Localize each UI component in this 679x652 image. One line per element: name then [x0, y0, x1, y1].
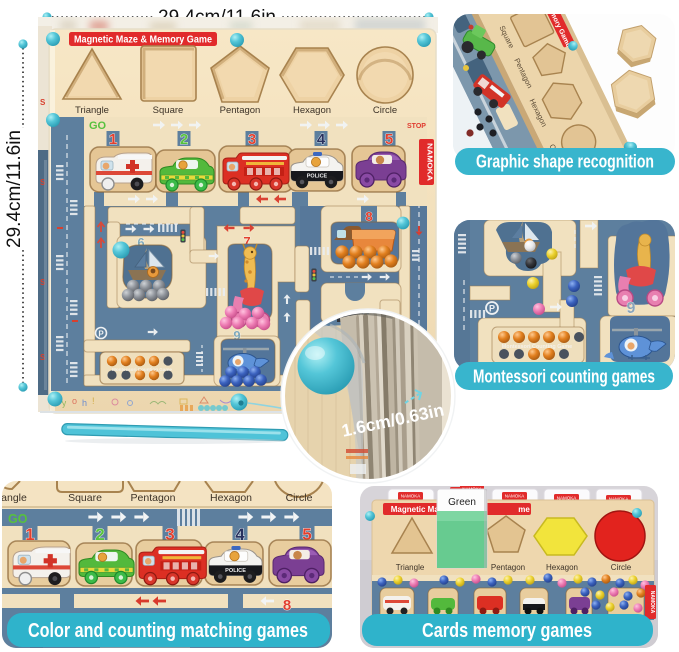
svg-text:NAMOKA: NAMOKA	[426, 143, 435, 182]
svg-text:P: P	[489, 304, 495, 314]
svg-text:GO: GO	[8, 512, 28, 526]
svg-text:Triangle: Triangle	[75, 105, 109, 116]
svg-text:2: 2	[180, 131, 188, 148]
svg-text:o: o	[72, 396, 77, 406]
svg-text:Montessori Counting Game: Montessori Counting Game	[112, 367, 172, 372]
svg-text:9: 9	[627, 300, 636, 317]
svg-text:NAMOKA: NAMOKA	[505, 494, 525, 499]
svg-text:Circle: Circle	[611, 563, 632, 572]
svg-text:Montessori Counting Game: Montessori Counting Game	[502, 344, 572, 350]
svg-text:29.4cm/11.6in: 29.4cm/11.6in	[4, 130, 25, 248]
svg-text:4: 4	[317, 131, 326, 148]
svg-text:Magnetic Maze & Memory Game: Magnetic Maze & Memory Game	[74, 35, 212, 46]
svg-text:NAMOKA: NAMOKA	[401, 494, 421, 499]
svg-text:Hexagon: Hexagon	[210, 492, 252, 504]
svg-text:angle: angle	[1, 492, 27, 504]
svg-text:STOP: STOP	[407, 123, 426, 130]
svg-text:Graphic shape recognition: Graphic shape recognition	[476, 152, 654, 172]
svg-text:Circle: Circle	[286, 492, 313, 504]
svg-text:h: h	[82, 398, 87, 408]
svg-text:Color and counting matching ga: Color and counting matching games	[28, 620, 308, 642]
svg-text:Montessori counting games: Montessori counting games	[473, 367, 655, 387]
svg-text:me: me	[518, 505, 530, 514]
svg-text:Square: Square	[153, 105, 184, 116]
svg-text:Triangle: Triangle	[396, 563, 425, 572]
svg-text:NAMOKA: NAMOKA	[649, 591, 655, 614]
svg-text:P: P	[98, 330, 104, 339]
svg-text:Green: Green	[448, 497, 476, 508]
svg-text:8: 8	[283, 597, 291, 614]
svg-text:S: S	[40, 98, 46, 107]
svg-text:!: !	[92, 396, 95, 406]
svg-text:Circle: Circle	[373, 105, 397, 116]
svg-text:Cards memory games: Cards memory games	[422, 620, 592, 642]
svg-text:Hexagon: Hexagon	[293, 105, 331, 116]
svg-text:GO: GO	[89, 120, 107, 132]
svg-text:Pentagon: Pentagon	[491, 563, 525, 572]
svg-text:Hexagon: Hexagon	[546, 563, 578, 572]
svg-text:Pentagon: Pentagon	[131, 492, 176, 504]
svg-text:Square: Square	[68, 492, 102, 504]
svg-text:1: 1	[109, 131, 117, 148]
svg-text:Pentagon: Pentagon	[220, 105, 261, 116]
